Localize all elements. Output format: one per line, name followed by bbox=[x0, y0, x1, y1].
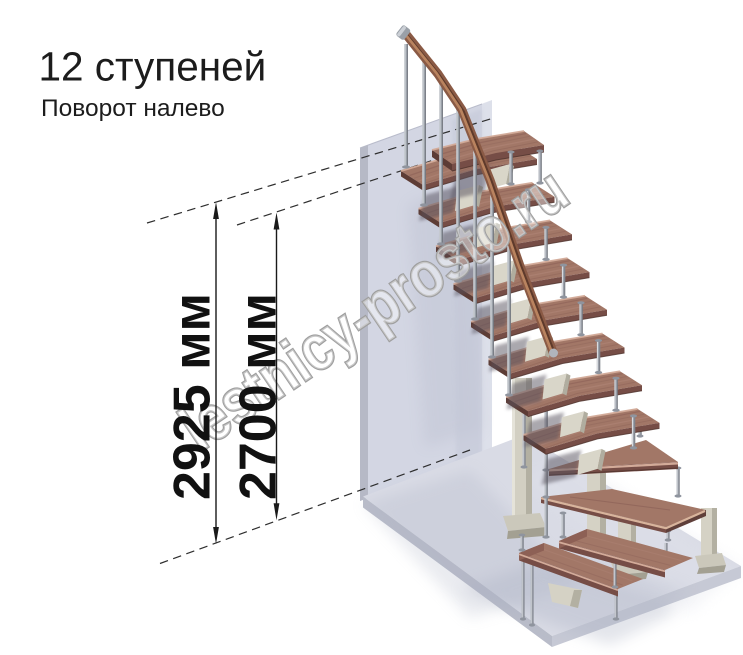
svg-text:Поворот налево: Поворот налево bbox=[41, 95, 225, 122]
svg-text:2925 мм: 2925 мм bbox=[164, 293, 222, 500]
svg-text:12 ступеней: 12 ступеней bbox=[39, 44, 267, 90]
svg-text:2700 мм: 2700 мм bbox=[230, 293, 288, 500]
